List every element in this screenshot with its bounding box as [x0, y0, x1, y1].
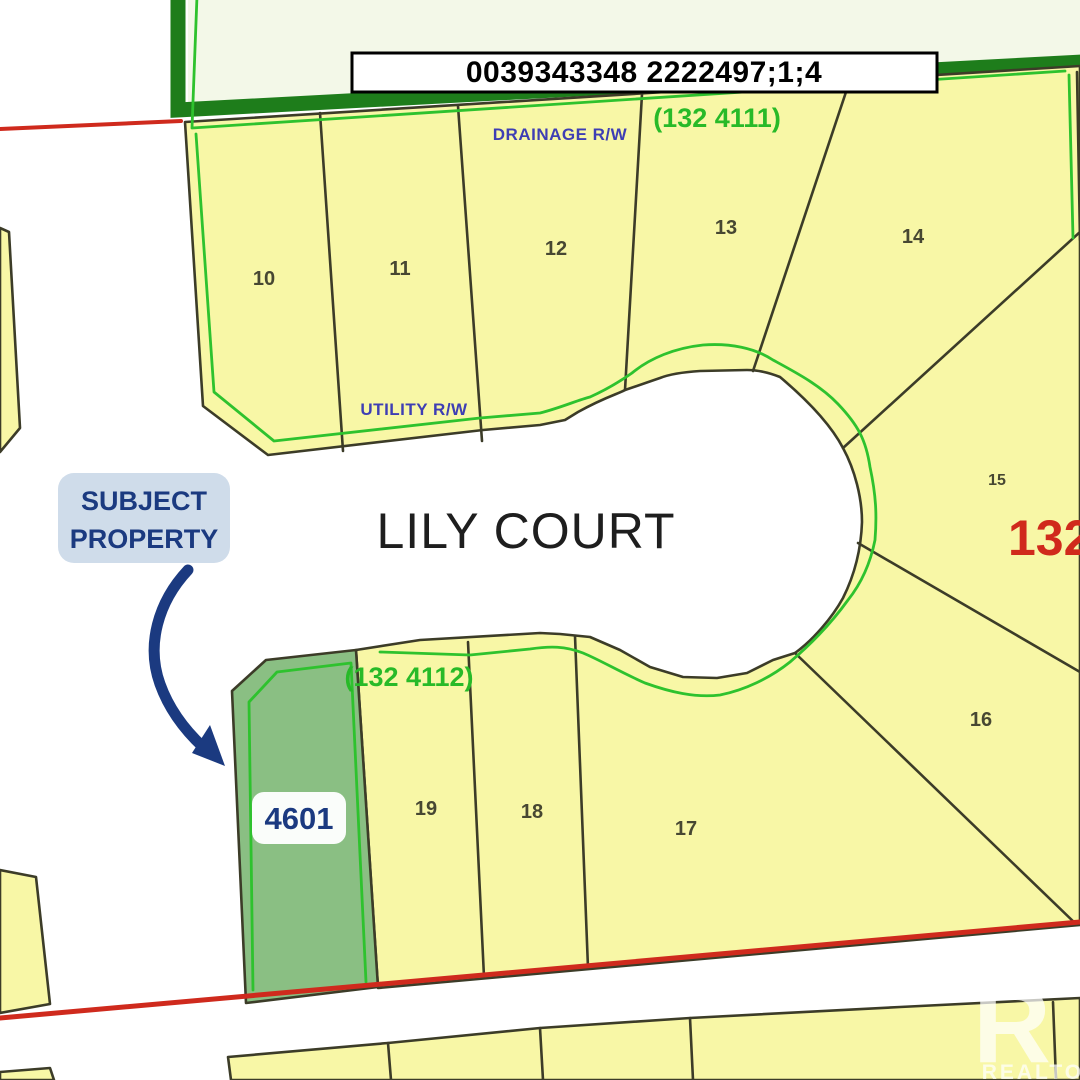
lot-13-label: 13 [715, 217, 737, 239]
lot-11-label: 11 [389, 258, 410, 280]
street-name-label: LILY COURT [377, 503, 676, 559]
drainage-rw-label: DRAINAGE R/W [493, 125, 628, 144]
utility-rw-label: UTILITY R/W [360, 400, 468, 419]
lot-17-label: 17 [675, 818, 697, 840]
lot-18-label: 18 [521, 801, 543, 823]
plan-4111-label: (132 4111) [653, 103, 781, 133]
title-text: 0039343348 2222497;1;4 [466, 56, 822, 89]
lot-16-label: 16 [970, 709, 992, 731]
subject-arrow [154, 570, 203, 747]
subject-arrow-head [192, 725, 225, 766]
lot-19-label: 19 [415, 798, 437, 820]
subject-callout-line1: SUBJECT [81, 486, 208, 516]
realtor-watermark-label: REALTOR [982, 1061, 1080, 1080]
bottom-corner-lot [0, 1068, 54, 1080]
lot-15-label: 15 [988, 472, 1006, 489]
lot-14-label: 14 [902, 226, 925, 248]
lot-10-label: 10 [253, 268, 275, 290]
left-sliver-lot [0, 228, 20, 452]
lot-12-label: 12 [545, 238, 567, 260]
plan-4112-label: (132 4112) [344, 662, 473, 692]
block-132-label: 132 [1008, 510, 1080, 566]
bottom-left-lot [0, 870, 50, 1013]
subject-callout-line2: PROPERTY [70, 524, 219, 554]
subject-lot-number: 4601 [265, 801, 334, 836]
plat-map: 10 11 12 13 14 15 16 17 18 19 DRAINAGE R… [0, 0, 1080, 1080]
bottom-row-lots [228, 998, 1080, 1080]
red-line-top-left [0, 121, 181, 129]
plat-map-canvas: 10 11 12 13 14 15 16 17 18 19 DRAINAGE R… [0, 0, 1080, 1080]
